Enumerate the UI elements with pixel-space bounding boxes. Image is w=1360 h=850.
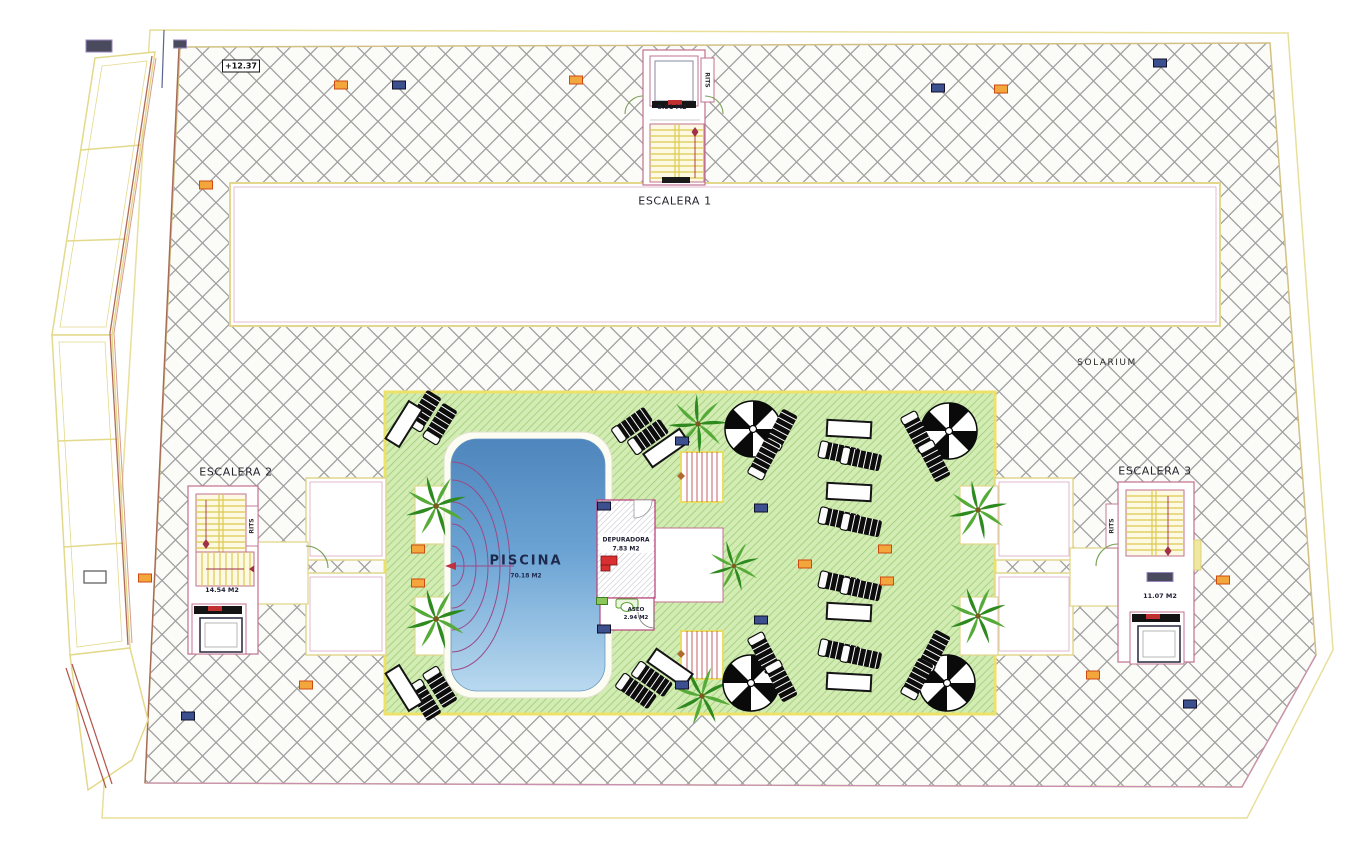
table-icon <box>827 483 872 501</box>
floor-plan-drawing <box>0 0 1360 850</box>
marker-blue <box>182 712 195 720</box>
floor-plan-canvas: ESCALERA 1 8.91 M2 RITS ESCALERA 2 14.54… <box>0 0 1360 850</box>
escalera1-rits-label: RITS <box>704 72 711 87</box>
piscina-label: PISCINA <box>489 554 562 569</box>
marker-blue <box>598 502 611 510</box>
escalera2-elevator <box>192 604 246 654</box>
escalera1-area-label: 8.91 M2 <box>657 103 686 111</box>
depuradora-area-label: 7.83 M2 <box>612 546 639 553</box>
escalera2-rits-label: RITS <box>249 518 256 533</box>
escalera3-elevator <box>1130 612 1184 664</box>
marker-orange <box>335 81 348 89</box>
marker-orange <box>995 85 1008 93</box>
central-platform <box>651 528 723 602</box>
marker-blue <box>755 616 768 624</box>
marker-orange <box>1087 671 1100 679</box>
depuradora-label: DEPURADORA <box>603 537 650 544</box>
escalera2-stairs <box>196 494 254 586</box>
marker-orange <box>570 76 583 84</box>
marker-orange <box>200 181 213 189</box>
marker-orange <box>139 574 152 582</box>
aseo-area-label: 2.94 M2 <box>624 615 649 621</box>
marker-dark <box>1147 573 1173 582</box>
solarium-label: SOLARIUM <box>1077 358 1136 368</box>
terrace-stairs-north <box>677 452 723 502</box>
marker-orange <box>881 577 894 585</box>
marker-orange <box>799 560 812 568</box>
table-icon <box>827 673 872 691</box>
marker-green <box>597 598 608 605</box>
escalera2-label: ESCALERA 2 <box>199 466 272 479</box>
marker-blue <box>393 81 406 89</box>
marker-blue <box>1184 700 1197 708</box>
marker-orange <box>1217 576 1230 584</box>
marker-blue <box>755 504 768 512</box>
escalera3-area-label: 11.07 M2 <box>1143 592 1177 600</box>
escalera1-stairs <box>650 124 704 183</box>
escalera3-stairs <box>1126 490 1184 556</box>
marker-dark <box>86 40 112 52</box>
marker-blue <box>932 84 945 92</box>
marker-blue <box>676 681 689 689</box>
marker-blue <box>598 625 611 633</box>
piscina-area-label: 70.18 M2 <box>510 573 541 580</box>
marker-orange <box>412 579 425 587</box>
escalera1-label: ESCALERA 1 <box>638 195 711 208</box>
escalera3-label: ESCALERA 3 <box>1118 465 1191 478</box>
elevation-badge: +12.37 <box>222 60 260 73</box>
escalera3-rits-label: RITS <box>1109 518 1116 533</box>
roof-void <box>230 183 1220 326</box>
marker-blue <box>1154 59 1167 67</box>
aseo-label: ASEO <box>628 607 645 613</box>
marker-orange <box>300 681 313 689</box>
marker-orange <box>879 545 892 553</box>
marker-orange <box>412 545 425 553</box>
marker-blue <box>676 437 689 445</box>
marker-outline <box>84 571 106 583</box>
escalera2-area-label: 14.54 M2 <box>205 586 239 594</box>
table-icon <box>827 603 872 621</box>
marker-dark <box>174 40 187 48</box>
table-icon <box>827 420 872 438</box>
